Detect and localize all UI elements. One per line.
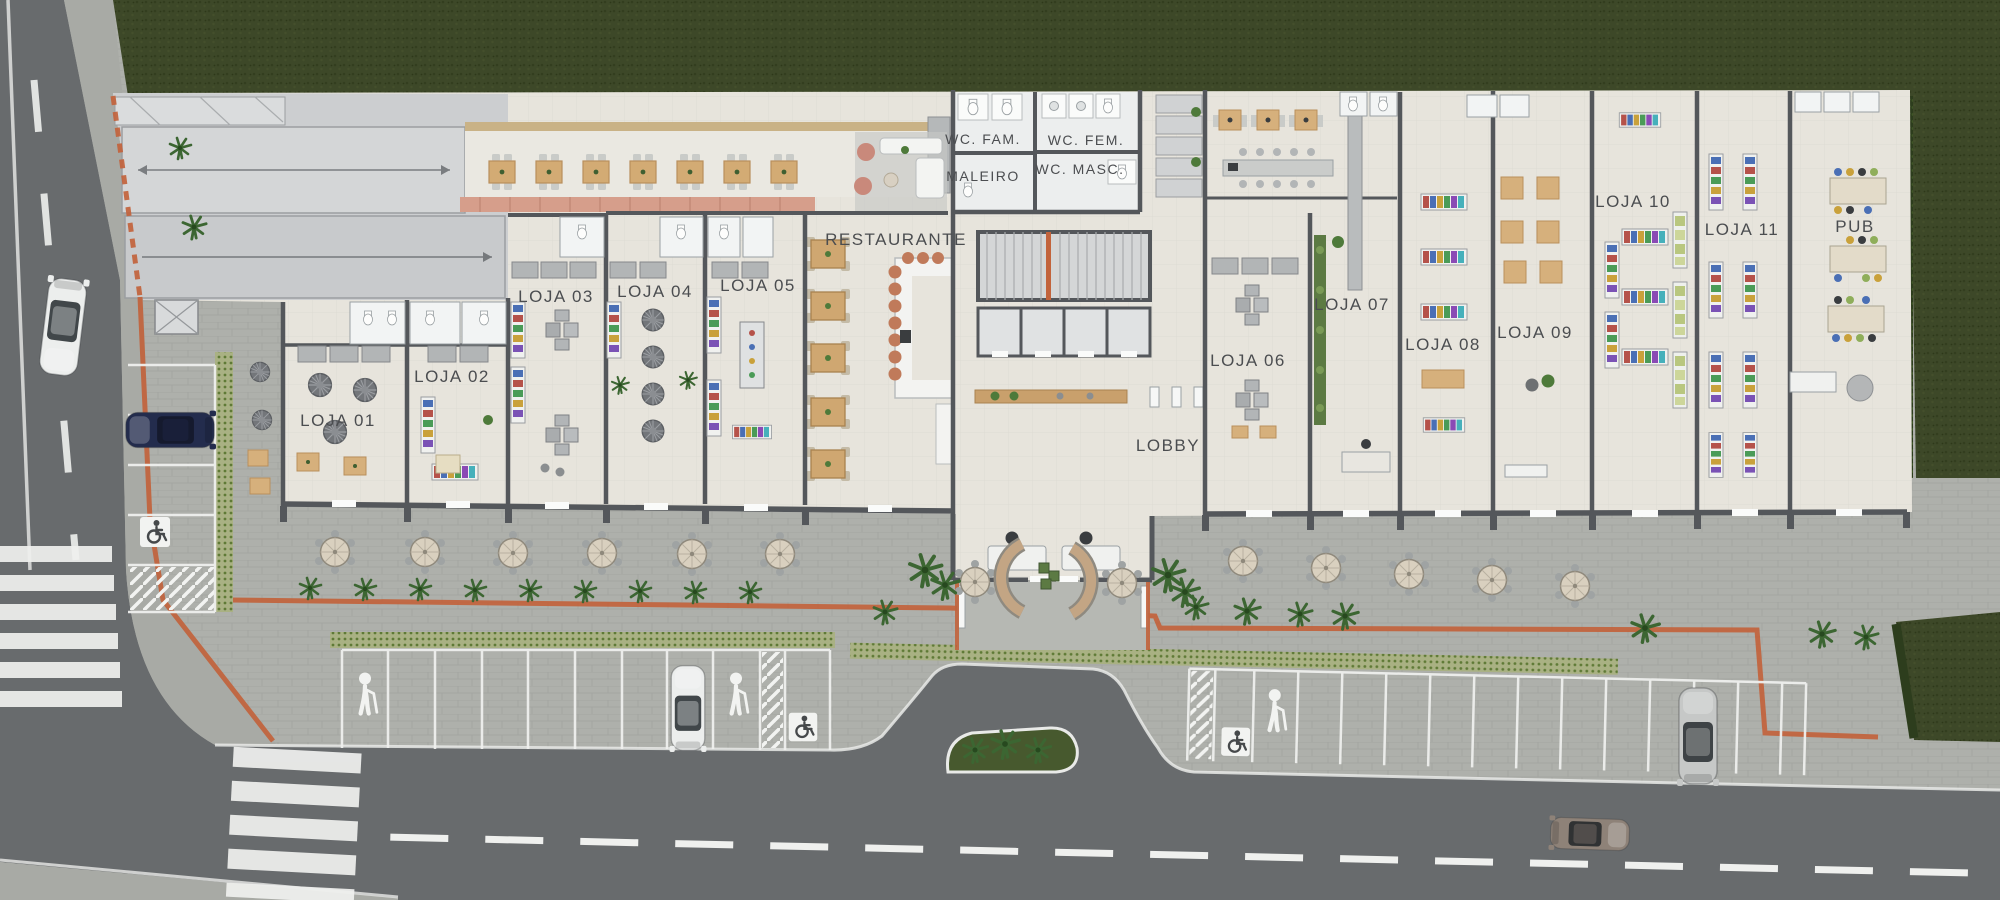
room-label-loja-02: LOJA 02 bbox=[414, 367, 490, 386]
wheelchair-icon bbox=[140, 517, 170, 547]
room-label-loja-08: LOJA 08 bbox=[1405, 335, 1481, 354]
no-parking-hatch bbox=[1189, 671, 1213, 759]
room-label-loja-03: LOJA 03 bbox=[518, 287, 594, 306]
service-area bbox=[113, 93, 508, 334]
room-label-wc-fam: WC. FAM. bbox=[945, 131, 1021, 147]
room-label-maleiro: MALEIRO bbox=[946, 168, 1020, 184]
room-label-loja-10: LOJA 10 bbox=[1595, 192, 1671, 211]
room-label-loja-01: LOJA 01 bbox=[300, 411, 376, 430]
car-silver-parked bbox=[1677, 688, 1719, 786]
wheelchair-icon bbox=[1221, 727, 1250, 756]
room-label-loja-06: LOJA 06 bbox=[1210, 351, 1286, 370]
site-plan: LOJA 01 LOJA 02 LOJA 03 LOJA 04 LOJA 05 … bbox=[0, 0, 2000, 900]
car-navy-parked bbox=[126, 411, 216, 450]
wheelchair-icon bbox=[789, 713, 818, 742]
wc-block bbox=[953, 92, 1140, 212]
room-label-lobby: LOBBY bbox=[1136, 436, 1200, 455]
no-parking-hatch bbox=[762, 652, 783, 748]
tactile-strip-left bbox=[215, 352, 233, 612]
car-taupe-road bbox=[1548, 815, 1630, 852]
no-parking-hatch bbox=[130, 567, 214, 610]
room-label-loja-04: LOJA 04 bbox=[617, 282, 693, 301]
room-label-wc-masc: WC. MASC. bbox=[1036, 161, 1125, 177]
tactile-strip-bottom bbox=[330, 632, 835, 648]
room-label-loja-05: LOJA 05 bbox=[720, 276, 796, 295]
car-white-parked bbox=[670, 666, 707, 752]
room-label-wc-fem: WC. FEM. bbox=[1048, 132, 1125, 148]
room-label-loja-07: LOJA 07 bbox=[1314, 295, 1390, 314]
room-label-loja-09: LOJA 09 bbox=[1497, 323, 1573, 342]
room-label-pub: PUB bbox=[1835, 217, 1874, 236]
room-label-restaurante: RESTAURANTE bbox=[825, 230, 967, 249]
room-label-loja-11: LOJA 11 bbox=[1705, 220, 1779, 239]
